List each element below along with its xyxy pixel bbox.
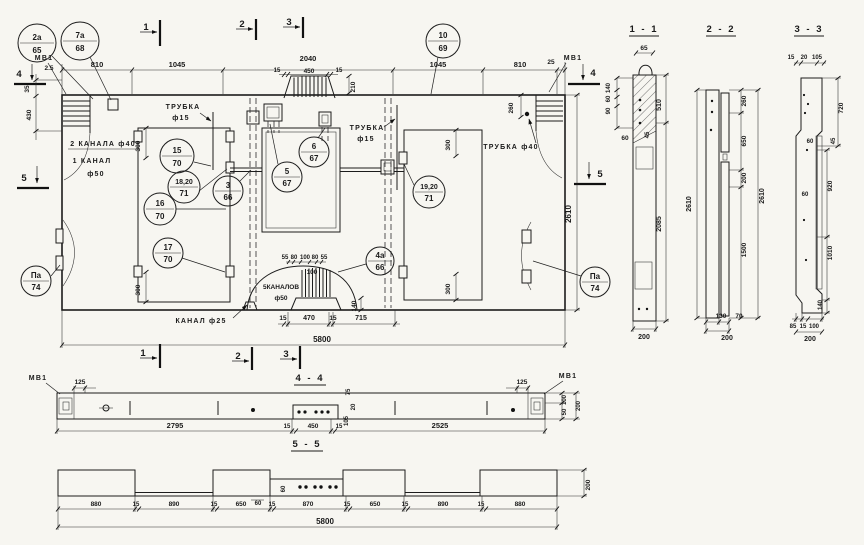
- svg-text:25: 25: [547, 59, 555, 66]
- svg-text:140: 140: [606, 82, 612, 93]
- lifting-loop: [639, 65, 652, 75]
- section-5-5-title: 5 - 5: [292, 439, 321, 450]
- svg-text:100: 100: [809, 324, 820, 330]
- svg-text:69: 69: [439, 44, 448, 53]
- embed-marks: [99, 401, 515, 415]
- plan-dimensions: 810 1045 2040 1045 810 25 15 450 15 210 …: [24, 54, 580, 348]
- svg-text:15: 15: [133, 502, 140, 508]
- svg-text:105: 105: [812, 55, 823, 61]
- anchor-pocket-left: [59, 393, 74, 419]
- svg-text:260: 260: [741, 95, 748, 106]
- svg-text:125: 125: [75, 379, 86, 386]
- svg-text:15: 15: [284, 424, 291, 430]
- corner-anchor-right: [525, 95, 563, 178]
- svg-text:10: 10: [439, 31, 448, 40]
- svg-text:70: 70: [173, 159, 182, 168]
- channel-recess: [293, 405, 338, 419]
- marker-3-bottom: 3: [283, 349, 290, 360]
- svg-text:80: 80: [312, 255, 319, 261]
- svg-text:2610: 2610: [564, 205, 573, 223]
- svg-text:510: 510: [656, 99, 663, 111]
- blueprint-sheet: 2а 65 7а 68 10 69 15 70 18,20 71 3 66 16…: [0, 0, 864, 545]
- callout-15-70: 15 70: [160, 139, 194, 173]
- svg-text:67: 67: [283, 179, 292, 188]
- svg-text:2525: 2525: [432, 421, 449, 430]
- marker-2-bottom: 2: [235, 351, 242, 362]
- svg-text:200: 200: [721, 335, 733, 342]
- panel-outline: [62, 95, 565, 310]
- svg-text:650: 650: [741, 135, 748, 146]
- svg-text:810: 810: [91, 60, 104, 69]
- marker-4-right: 4: [590, 68, 597, 79]
- svg-text:2610: 2610: [759, 188, 766, 204]
- channel25-label: КАНАЛ ф25: [175, 318, 226, 325]
- svg-text:300: 300: [445, 283, 452, 294]
- svg-text:200: 200: [804, 336, 816, 343]
- svg-text:15: 15: [336, 68, 343, 74]
- tube40-label: ТРУБКА ф40: [483, 144, 538, 151]
- plan-view: 2а 65 7а 68 10 69 15 70 18,20 71 3 66 16…: [14, 17, 610, 370]
- svg-text:1500: 1500: [741, 242, 748, 257]
- section-3-3-title: 3 - 3: [794, 24, 823, 35]
- svg-text:2085: 2085: [656, 216, 663, 232]
- mv1-label-right: МВ1: [564, 55, 582, 62]
- svg-text:130: 130: [716, 313, 727, 320]
- svg-text:45: 45: [831, 137, 837, 144]
- svg-text:810: 810: [514, 60, 527, 69]
- svg-text:19,20: 19,20: [420, 184, 438, 191]
- svg-text:15: 15: [269, 502, 276, 508]
- svg-text:100: 100: [562, 394, 568, 405]
- svg-text:470: 470: [303, 315, 315, 322]
- svg-text:300: 300: [135, 140, 142, 151]
- section-3-3: 3 - 3 15 20 105 720 45 920 1010 140 60 6…: [788, 24, 845, 343]
- svg-text:70: 70: [156, 212, 165, 221]
- svg-text:1045: 1045: [169, 60, 186, 69]
- svg-text:260: 260: [508, 102, 515, 113]
- svg-text:45: 45: [645, 131, 651, 138]
- svg-text:15: 15: [336, 424, 343, 430]
- svg-text:2а: 2а: [33, 33, 42, 42]
- section-4-4-title: 4 - 4: [295, 373, 324, 384]
- svg-text:20: 20: [351, 403, 357, 410]
- svg-text:105: 105: [344, 415, 350, 426]
- marker-5-right: 5: [597, 169, 604, 180]
- svg-text:920: 920: [827, 180, 834, 191]
- svg-text:17: 17: [164, 243, 173, 252]
- plan-total-dim: 5800: [313, 335, 331, 344]
- svg-text:70: 70: [735, 313, 743, 320]
- svg-text:15: 15: [329, 315, 337, 322]
- svg-text:60: 60: [802, 192, 809, 198]
- svg-text:890: 890: [438, 501, 449, 508]
- svg-text:15: 15: [402, 502, 409, 508]
- svg-text:60: 60: [807, 139, 814, 145]
- svg-text:66: 66: [224, 193, 233, 202]
- section-1-1: 1 - 1 65 140 60 90 60 45 510 2085 200: [606, 24, 669, 341]
- svg-text:65: 65: [640, 45, 648, 52]
- svg-text:15: 15: [274, 68, 281, 74]
- marker-2-top: 2: [239, 19, 246, 30]
- svg-text:880: 880: [91, 501, 102, 508]
- tube15-mid-label: ТРУБКА: [350, 125, 385, 132]
- svg-text:890: 890: [169, 501, 180, 508]
- callout-pa-74-right: Па 74: [580, 267, 610, 297]
- callout-1820-71: 18,20 71: [168, 171, 200, 203]
- callout-16-70: 16 70: [144, 193, 176, 225]
- svg-text:15: 15: [788, 55, 795, 61]
- callout-leaders: [51, 56, 581, 276]
- svg-text:60: 60: [281, 485, 287, 492]
- top-edge-fitting: [108, 99, 118, 110]
- callout-pa-74-left: Па 74: [21, 266, 51, 296]
- svg-text:430: 430: [26, 109, 33, 120]
- svg-text:140: 140: [351, 300, 358, 311]
- panel-drawing: 2а 65 7а 68 10 69 15 70 18,20 71 3 66 16…: [0, 0, 864, 545]
- opening-left: [138, 128, 230, 302]
- corner-anchor-left: [63, 95, 90, 180]
- svg-text:67: 67: [310, 154, 319, 163]
- svg-text:15: 15: [800, 324, 807, 330]
- svg-text:15: 15: [279, 315, 287, 322]
- svg-text:65: 65: [33, 46, 42, 55]
- svg-text:55: 55: [321, 255, 328, 261]
- svg-text:2.5: 2.5: [44, 65, 53, 72]
- opening-right: [404, 130, 482, 300]
- marker-1-top: 1: [143, 22, 150, 33]
- svg-text:75: 75: [346, 388, 352, 395]
- svg-text:80: 80: [291, 255, 298, 261]
- svg-text:125: 125: [517, 379, 528, 386]
- svg-text:5: 5: [285, 167, 290, 176]
- svg-text:ф50: ф50: [275, 295, 288, 302]
- marker-5-left: 5: [21, 173, 28, 184]
- svg-text:450: 450: [304, 68, 315, 75]
- svg-text:1010: 1010: [827, 245, 834, 260]
- svg-text:71: 71: [180, 189, 189, 198]
- svg-text:15: 15: [211, 502, 218, 508]
- marker-4-left: 4: [16, 69, 23, 80]
- channel1-label: 1 КАНАЛ: [73, 158, 112, 165]
- svg-text:ф15: ф15: [172, 115, 190, 122]
- svg-text:85: 85: [790, 324, 797, 330]
- callout-7a-68: 7а 68: [61, 22, 99, 60]
- bottom-channel-dome: [243, 266, 357, 310]
- svg-text:200: 200: [638, 334, 650, 341]
- svg-text:60: 60: [606, 95, 612, 102]
- mv1-label-left: МВ1: [35, 55, 53, 62]
- marker-3-top: 3: [286, 17, 293, 28]
- svg-text:6: 6: [312, 142, 317, 151]
- marker-1-bottom: 1: [140, 348, 147, 359]
- svg-text:70: 70: [164, 255, 173, 264]
- svg-text:50: 50: [562, 408, 568, 415]
- svg-text:15: 15: [478, 502, 485, 508]
- svg-text:7а: 7а: [76, 31, 85, 40]
- callout-1920-71: 19,20 71: [413, 176, 445, 208]
- svg-text:720: 720: [838, 102, 845, 113]
- svg-text:4а: 4а: [376, 251, 385, 260]
- svg-text:715: 715: [355, 315, 367, 322]
- svg-text:Па: Па: [590, 272, 601, 281]
- svg-text:60: 60: [255, 501, 262, 507]
- svg-text:300: 300: [445, 139, 452, 150]
- svg-text:55: 55: [282, 255, 289, 261]
- svg-text:100: 100: [300, 255, 311, 261]
- svg-text:2040: 2040: [300, 54, 317, 63]
- section-4-4: 4 - 4 МВ1 МВ1 125 125 2795 15 450 15 252…: [29, 373, 582, 434]
- edge-notch-right: [522, 222, 532, 290]
- svg-text:20: 20: [801, 55, 808, 61]
- mv1-label-44-left: МВ1: [29, 375, 47, 382]
- anchor-pocket-right: [528, 393, 543, 419]
- callout-3-66: 3 66: [213, 176, 243, 206]
- svg-text:200: 200: [741, 172, 748, 183]
- svg-text:15: 15: [173, 146, 182, 155]
- svg-text:60: 60: [621, 135, 629, 142]
- channels5-label: 5КАНАЛОВ: [263, 284, 299, 291]
- svg-text:35: 35: [24, 85, 31, 93]
- svg-text:210: 210: [350, 81, 357, 92]
- s55-total-dim: 5800: [316, 517, 334, 526]
- svg-text:300: 300: [135, 284, 142, 295]
- svg-text:880: 880: [515, 501, 526, 508]
- section-2-2: 2 - 2 2610 260 650 200 1500 2610 130 70 …: [686, 24, 766, 342]
- callout-10-69: 10 69: [426, 24, 460, 58]
- svg-text:15: 15: [344, 502, 351, 508]
- svg-text:74: 74: [591, 284, 600, 293]
- svg-text:ф50: ф50: [87, 171, 105, 178]
- svg-text:2610: 2610: [686, 196, 693, 212]
- svg-text:Па: Па: [31, 271, 42, 280]
- svg-text:18,20: 18,20: [175, 179, 193, 186]
- svg-text:3: 3: [226, 181, 231, 190]
- svg-text:650: 650: [370, 501, 381, 508]
- svg-text:16: 16: [156, 199, 165, 208]
- section-2-2-title: 2 - 2: [706, 24, 735, 35]
- svg-text:1045: 1045: [430, 60, 447, 69]
- svg-text:200: 200: [576, 400, 582, 411]
- section-1-1-title: 1 - 1: [629, 24, 658, 35]
- callout-4a-66: 4а 66: [366, 247, 394, 275]
- svg-text:71: 71: [425, 194, 434, 203]
- svg-text:2795: 2795: [167, 421, 184, 430]
- svg-text:200: 200: [585, 479, 592, 490]
- svg-text:90: 90: [606, 107, 612, 114]
- svg-text:140: 140: [818, 299, 824, 310]
- svg-text:450: 450: [308, 423, 319, 430]
- tube15-left-label: ТРУБКА: [166, 104, 201, 111]
- svg-text:650: 650: [236, 501, 247, 508]
- callout-17-70: 17 70: [153, 238, 183, 268]
- junction-box: [264, 104, 282, 121]
- svg-text:74: 74: [32, 283, 41, 292]
- callout-6-67: 6 67: [299, 137, 329, 167]
- svg-text:870: 870: [303, 501, 314, 508]
- section-5-5: 5 - 5 60 60 200 880 15 890 15 650 15 870…: [56, 439, 592, 530]
- svg-text:100: 100: [307, 269, 318, 276]
- callout-5-67: 5 67: [272, 162, 302, 192]
- svg-text:66: 66: [376, 263, 385, 272]
- svg-text:ф15: ф15: [357, 136, 375, 143]
- mv1-label-44-right: МВ1: [559, 373, 577, 380]
- edge-notch-left: [56, 220, 75, 286]
- channels2-label: 2 КАНАЛА ф40: [70, 141, 136, 148]
- svg-text:68: 68: [76, 44, 85, 53]
- tube40-outlet-dot: [525, 112, 529, 116]
